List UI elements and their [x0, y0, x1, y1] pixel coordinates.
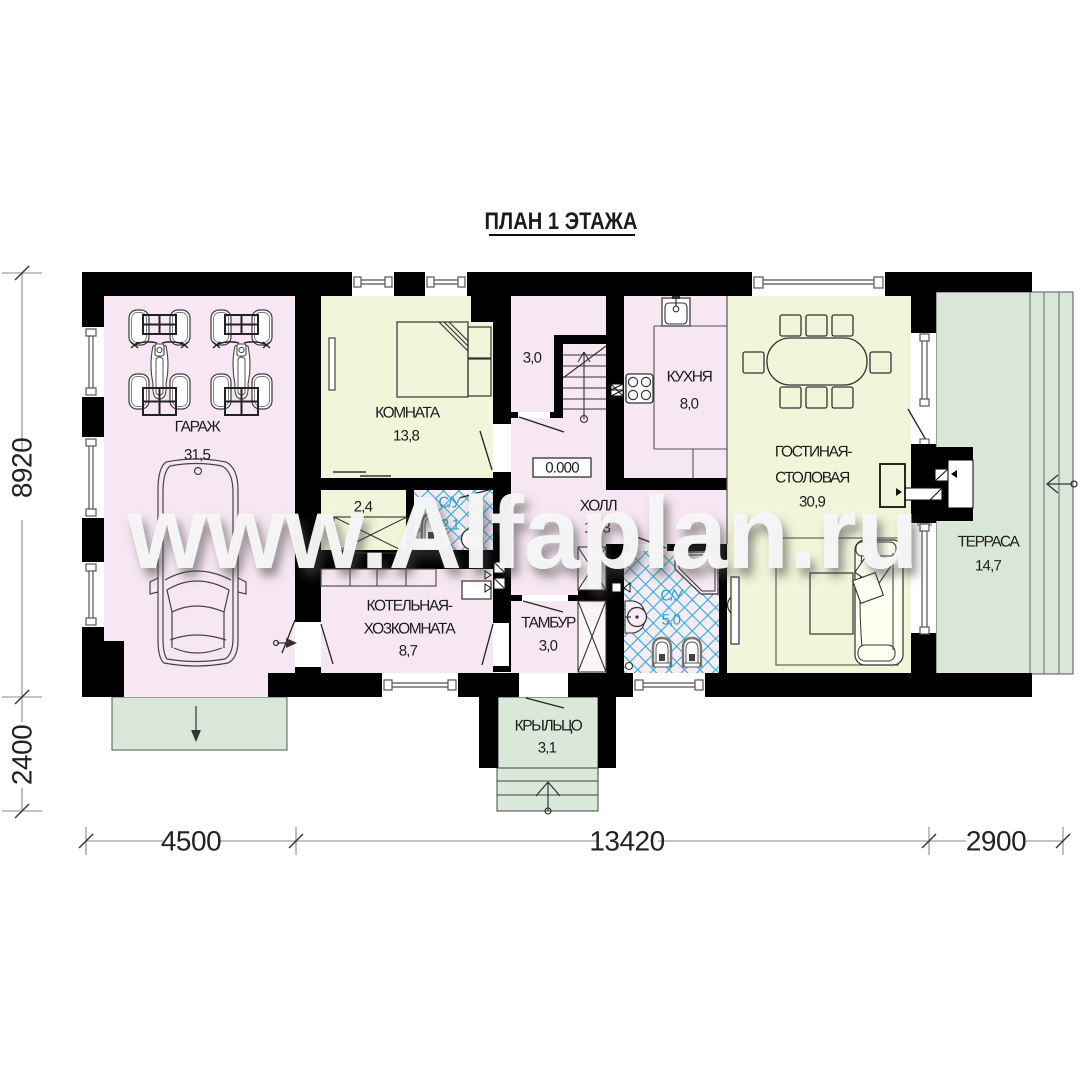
- svg-text:3,1: 3,1: [538, 740, 557, 757]
- svg-text:13420: 13420: [589, 826, 664, 857]
- svg-text:3,0: 3,0: [539, 638, 558, 655]
- svg-text:8,0: 8,0: [680, 396, 699, 413]
- svg-text:С/У: С/У: [660, 588, 683, 605]
- svg-text:4500: 4500: [161, 826, 221, 857]
- svg-text:31,5: 31,5: [184, 447, 210, 464]
- svg-text:ТАМБУР: ТАМБУР: [521, 615, 576, 632]
- svg-text:КУХНЯ: КУХНЯ: [667, 369, 712, 386]
- svg-text:ГАРАЖ: ГАРАЖ: [175, 419, 222, 436]
- svg-text:14,7: 14,7: [975, 558, 1001, 575]
- svg-text:www.Alfaplan.ru: www.Alfaplan.ru: [126, 475, 918, 590]
- svg-text:ПЛАН 1 ЭТАЖА: ПЛАН 1 ЭТАЖА: [485, 208, 638, 235]
- svg-text:ГОСТИНАЯ-: ГОСТИНАЯ-: [775, 444, 852, 461]
- svg-text:2900: 2900: [966, 826, 1026, 857]
- svg-text:2400: 2400: [7, 725, 38, 785]
- svg-text:3,0: 3,0: [523, 350, 542, 367]
- svg-text:5,0: 5,0: [662, 612, 681, 629]
- svg-text:КРЫЛЬЦО: КРЫЛЬЦО: [515, 718, 583, 735]
- svg-text:ТЕРРАСА: ТЕРРАСА: [958, 534, 1021, 551]
- svg-text:8,7: 8,7: [399, 643, 418, 660]
- svg-text:КОТЕЛЬНАЯ-: КОТЕЛЬНАЯ-: [367, 598, 453, 615]
- svg-text:КОМНАТА: КОМНАТА: [375, 405, 441, 422]
- svg-text:0.000: 0.000: [545, 460, 579, 477]
- svg-text:8920: 8920: [7, 438, 38, 498]
- svg-text:13,8: 13,8: [393, 428, 419, 445]
- svg-text:ХОЗКОМНАТА: ХОЗКОМНАТА: [364, 621, 457, 638]
